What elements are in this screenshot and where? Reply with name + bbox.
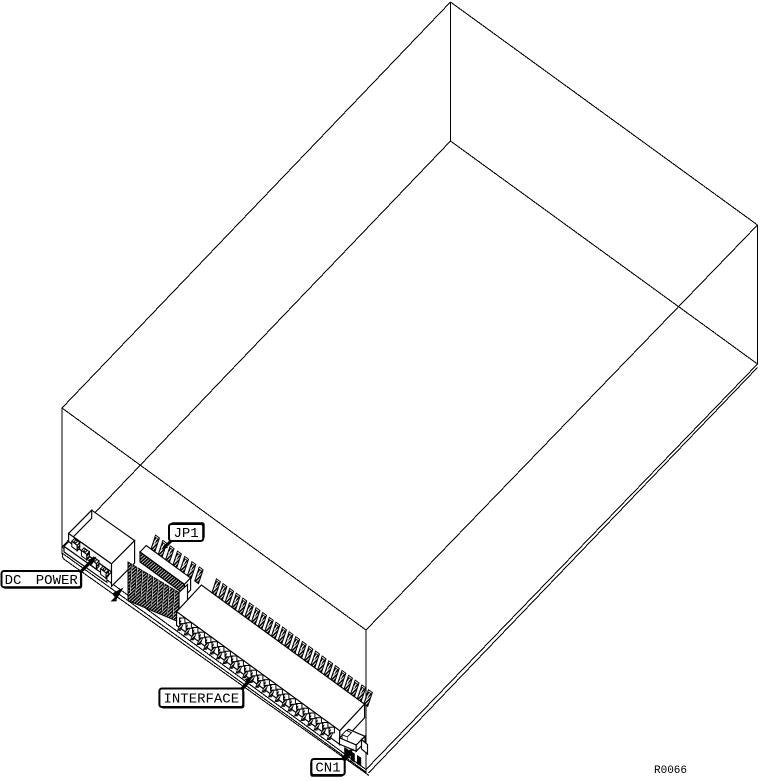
svg-text:R0066: R0066 — [654, 765, 687, 777]
svg-text:JP1: JP1 — [173, 526, 198, 542]
svg-text:CN1: CN1 — [315, 761, 340, 777]
svg-text:DC POWER: DC POWER — [5, 573, 79, 589]
svg-text:INTERFACE: INTERFACE — [163, 692, 239, 708]
